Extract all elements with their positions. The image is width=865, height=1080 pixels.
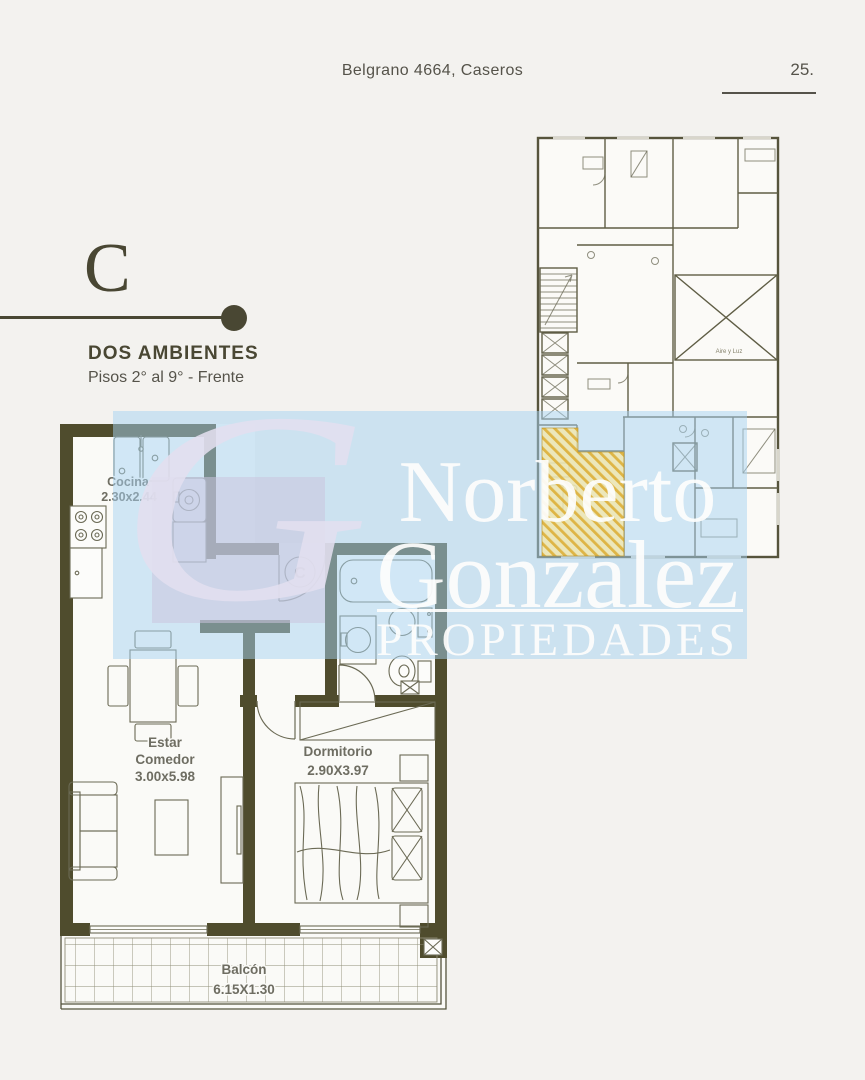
unit-divider-line (0, 316, 222, 319)
unit-letter: C (84, 234, 131, 304)
page-number: 25. (722, 60, 814, 80)
label-dormitorio-dims: 2.90X3.97 (307, 763, 369, 778)
stove-icon (70, 506, 106, 548)
label-balcon: Balcón (221, 962, 266, 977)
label-estar-dims: 3.00x5.98 (135, 769, 196, 784)
label-estar-2: Comedor (135, 752, 195, 767)
kitchen-counter (70, 548, 102, 598)
label-dormitorio: Dormitorio (304, 744, 373, 759)
brand-rule (377, 609, 743, 612)
unit-divider-dot (221, 305, 247, 331)
light-well-label: Aire y Luz (716, 349, 743, 355)
brand-monogram: G (118, 372, 369, 644)
brand-tagline: PROPIEDADES (360, 617, 755, 664)
page: Belgrano 4664, Caseros 25. C DOS AMBIENT… (0, 0, 865, 1080)
page-number-rule (722, 92, 816, 94)
label-balcon-dims: 6.15X1.30 (213, 982, 275, 997)
label-estar-1: Estar (148, 735, 183, 750)
